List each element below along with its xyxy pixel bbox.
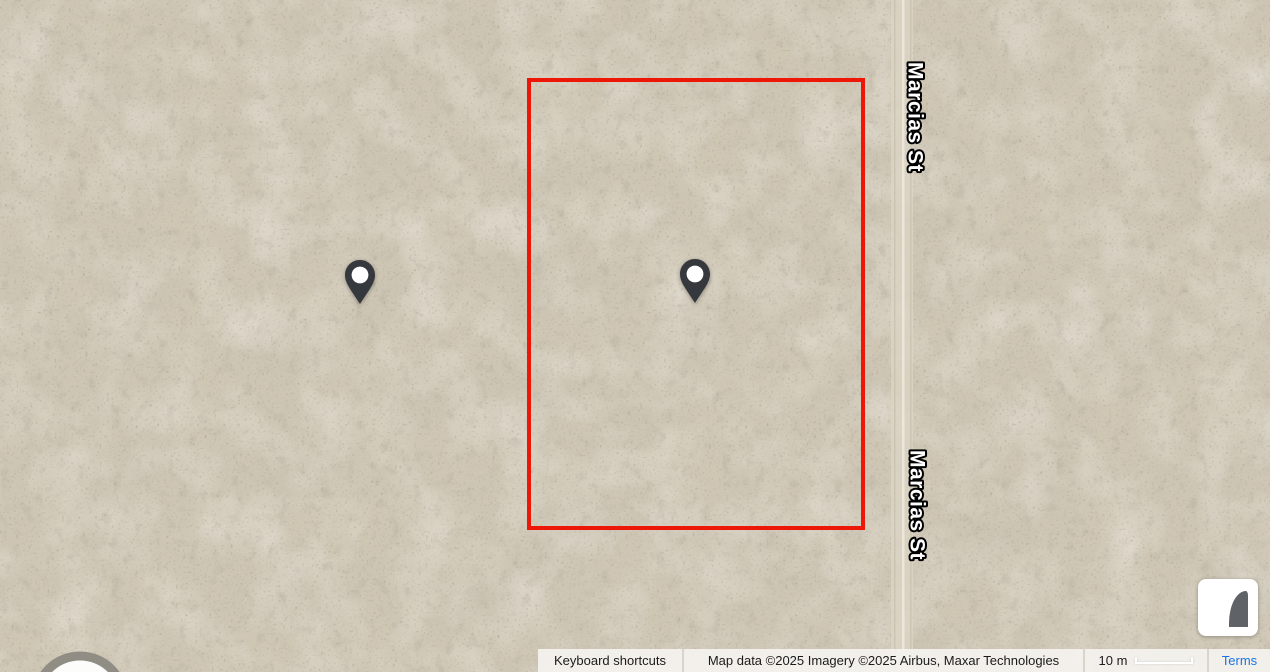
scale-control[interactable]: 10 m	[1083, 649, 1207, 672]
map-canvas[interactable]: Marcias St Marcias St Keyboard shortcuts…	[0, 0, 1270, 672]
map-marker-icon[interactable]	[344, 259, 376, 306]
map-attribution: Map data ©2025 Imagery ©2025 Airbus, Max…	[682, 649, 1083, 672]
keyboard-shortcuts-button[interactable]: Keyboard shortcuts	[538, 649, 682, 672]
pegman-control[interactable]	[1198, 579, 1258, 636]
scale-bar	[1135, 657, 1193, 664]
map-marker-icon[interactable]	[679, 258, 711, 305]
terms-link[interactable]: Terms	[1207, 649, 1270, 672]
dirt-road	[891, 0, 913, 672]
scale-label: 10 m	[1099, 653, 1128, 668]
pegman-icon	[1229, 591, 1248, 627]
map-footer: Keyboard shortcuts Map data ©2025 Imager…	[538, 649, 1270, 672]
